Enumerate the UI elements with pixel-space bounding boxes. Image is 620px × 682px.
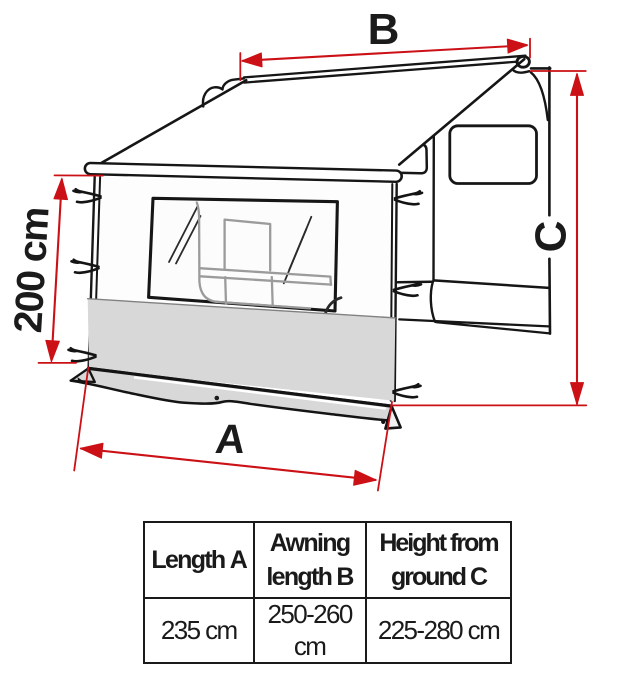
svg-text:200 cm: 200 cm <box>6 207 58 334</box>
svg-text:C: C <box>527 221 576 253</box>
svg-text:A: A <box>213 416 247 462</box>
svg-text:B: B <box>368 5 400 54</box>
